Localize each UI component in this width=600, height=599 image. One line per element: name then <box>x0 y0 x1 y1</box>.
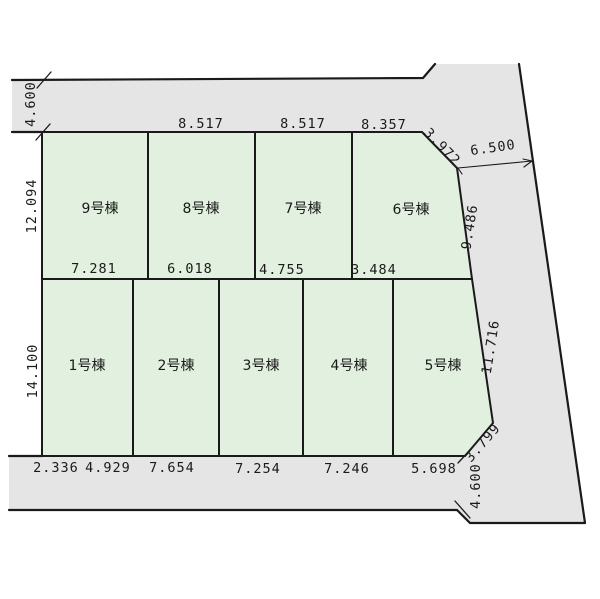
plot-label-8: 8号棟 <box>183 201 220 217</box>
dim-lower-row-depth: 14.100 <box>25 344 41 399</box>
dim-middle-width-9: 7.281 <box>71 261 117 277</box>
plot-label-7: 7号棟 <box>285 201 322 217</box>
dim-bottom-right-road-width: 4.600 <box>468 463 484 509</box>
dim-top-width-7: 8.517 <box>280 116 326 132</box>
dim-bottom-width-2: 7.654 <box>149 460 195 476</box>
dim-bottom-width-4: 7.246 <box>324 461 370 477</box>
dim-upper-row-depth: 12.094 <box>24 179 40 234</box>
plot-label-9: 9号棟 <box>82 201 119 217</box>
dim-top-road-width: 4.600 <box>23 81 39 127</box>
dim-middle-width-8: 6.018 <box>167 261 213 277</box>
plot-label-2: 2号棟 <box>158 358 195 374</box>
site-plan-page: 4.600 12.094 14.100 3.972 6.500 9.486 11… <box>0 0 600 599</box>
dim-bottom-width-a: 2.336 <box>33 460 79 476</box>
dim-top-width-8: 8.517 <box>178 116 224 132</box>
plot-label-1: 1号棟 <box>69 358 106 374</box>
dim-bottom-width-1: 4.929 <box>85 460 131 476</box>
dim-bottom-width-3: 7.254 <box>235 461 281 477</box>
dim-middle-width-7: 4.755 <box>259 262 305 278</box>
plot-label-5: 5号棟 <box>425 358 462 374</box>
dim-middle-width-6: 3.484 <box>351 262 397 278</box>
site-plan-drawing: 4.600 12.094 14.100 3.972 6.500 9.486 11… <box>0 0 600 599</box>
dim-bottom-width-5: 5.698 <box>411 461 457 477</box>
dim-top-width-6: 8.357 <box>361 117 407 133</box>
plot-label-4: 4号棟 <box>331 358 368 374</box>
plot-label-3: 3号棟 <box>243 358 280 374</box>
plot-label-6: 6号棟 <box>393 202 430 218</box>
